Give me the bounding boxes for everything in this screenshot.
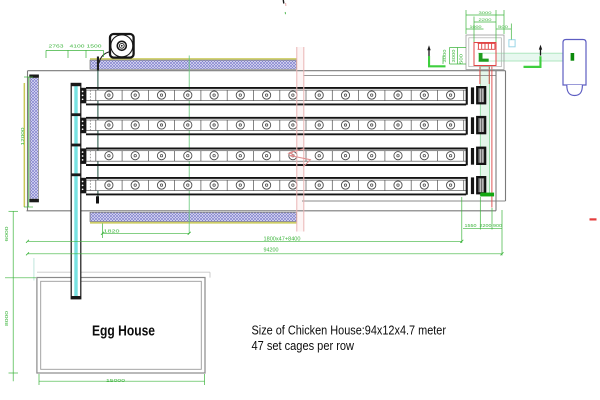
svg-text:1550: 1550 — [465, 223, 478, 228]
svg-text:2200: 2200 — [479, 17, 493, 22]
svg-text:94200: 94200 — [264, 247, 279, 253]
svg-text:8000: 8000 — [4, 311, 10, 326]
svg-text:1800x47+8400: 1800x47+8400 — [264, 236, 301, 242]
svg-text:Size of Chicken House:94x12x4.: Size of Chicken House:94x12x4.7 meter — [252, 324, 447, 338]
svg-text:1500: 1500 — [87, 44, 103, 49]
svg-text:Egg House: Egg House — [92, 324, 155, 340]
svg-text:15000: 15000 — [106, 378, 125, 384]
svg-text:2763: 2763 — [49, 44, 65, 49]
svg-text:3000: 3000 — [479, 10, 493, 15]
svg-text:3000: 3000 — [451, 49, 456, 63]
svg-text:1820: 1820 — [104, 228, 120, 234]
svg-text:500: 500 — [498, 24, 509, 29]
svg-text:900: 900 — [493, 223, 503, 228]
svg-text:2200: 2200 — [480, 223, 493, 228]
svg-text:12000: 12000 — [20, 127, 26, 145]
svg-text:1000: 1000 — [470, 24, 483, 29]
svg-text:6000: 6000 — [4, 226, 10, 241]
svg-text:4100: 4100 — [70, 44, 86, 49]
svg-text:500: 500 — [459, 53, 464, 64]
svg-text:47 set cages per row: 47 set cages per row — [252, 339, 355, 353]
